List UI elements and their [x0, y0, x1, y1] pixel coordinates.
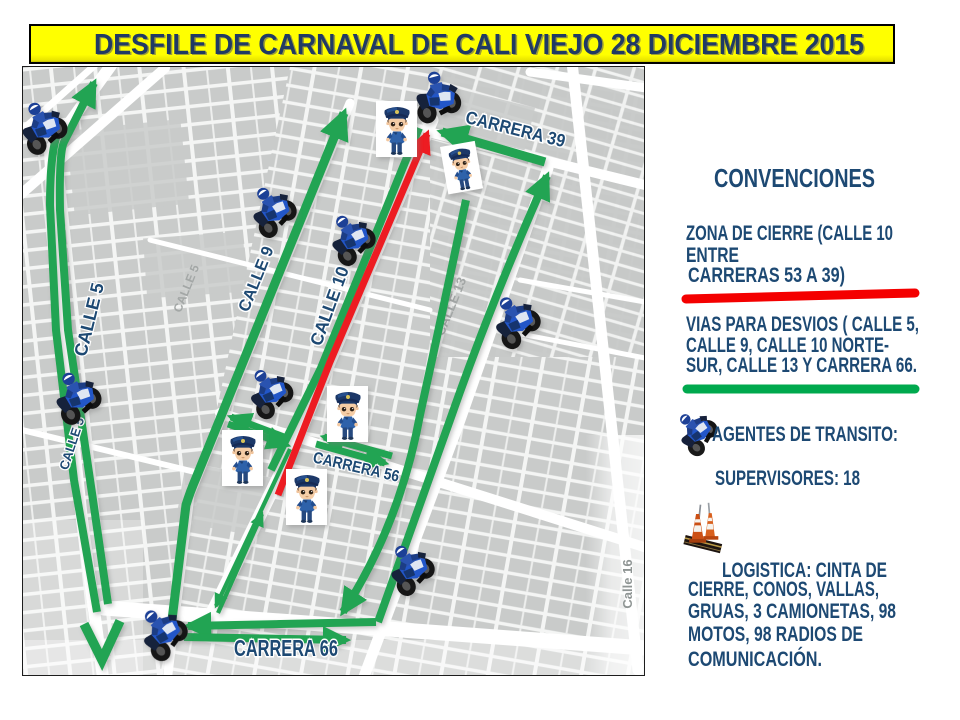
svg-text:CIERRE, CONOS, VALLAS,: CIERRE, CONOS, VALLAS, — [688, 578, 879, 601]
svg-text:Calle 16: Calle 16 — [620, 559, 635, 608]
svg-text:AGENTES DE TRANSITO:: AGENTES DE TRANSITO: — [712, 423, 898, 446]
svg-text:ZONA DE CIERRE (CALLE 10: ZONA DE CIERRE (CALLE 10 — [686, 222, 893, 245]
svg-text:SUR, CALLE 13 Y CARRERA 66.: SUR, CALLE 13 Y CARRERA 66. — [686, 354, 917, 377]
svg-text:SUPERVISORES: 18: SUPERVISORES: 18 — [715, 467, 860, 490]
svg-text:MOTOS, 98 RADIOS DE: MOTOS, 98 RADIOS DE — [688, 623, 863, 646]
svg-text:GRUAS, 3 CAMIONETAS, 98: GRUAS, 3 CAMIONETAS, 98 — [688, 600, 896, 623]
svg-text:COMUNICACIÓN.: COMUNICACIÓN. — [688, 647, 822, 671]
svg-text:CARRERA 66: CARRERA 66 — [234, 635, 338, 661]
svg-text:VIAS PARA DESVIOS ( CALLE 5,: VIAS PARA DESVIOS ( CALLE 5, — [686, 313, 919, 336]
svg-text:CONVENCIONES: CONVENCIONES — [714, 163, 875, 193]
svg-text:CARRERAS 53 A 39): CARRERAS 53 A 39) — [688, 264, 845, 287]
svg-text:DESFILE DE CARNAVAL DE CALI VI: DESFILE DE CARNAVAL DE CALI VIEJO 28 DIC… — [94, 29, 864, 61]
